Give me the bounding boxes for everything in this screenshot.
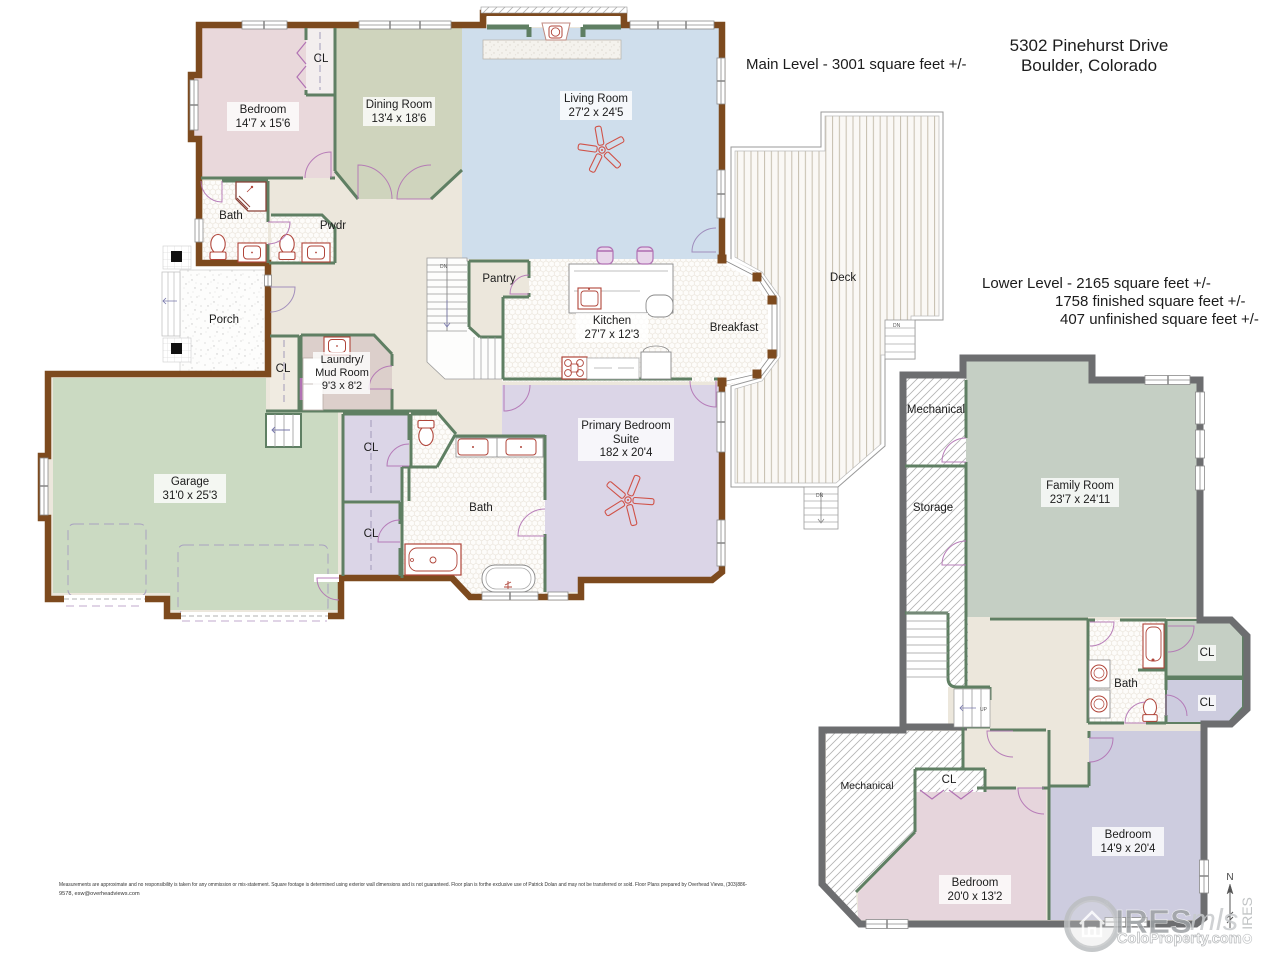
svg-text:Bedroom: Bedroom [1105, 829, 1152, 841]
svg-text:23'7 x 24'11: 23'7 x 24'11 [1050, 494, 1110, 506]
svg-text:Garage: Garage [171, 476, 209, 488]
svg-text:Kitchen: Kitchen [593, 315, 631, 327]
svg-text:CL: CL [364, 442, 379, 454]
svg-text:Bath: Bath [469, 502, 493, 514]
svg-text:Storage: Storage [913, 502, 953, 514]
svg-text:Bedroom: Bedroom [952, 877, 999, 889]
svg-text:Measurements are approximate: Measurements are approximate and no resp… [59, 882, 747, 888]
svg-text:407 unfinished square feet +/-: 407 unfinished square feet +/- [1060, 311, 1259, 328]
svg-text:Deck: Deck [830, 272, 856, 284]
svg-text:Bedroom: Bedroom [240, 104, 287, 116]
svg-text:DN: DN [440, 264, 448, 270]
svg-text:Mechanical: Mechanical [907, 404, 965, 416]
svg-text:13'4 x 18'6: 13'4 x 18'6 [372, 113, 427, 125]
svg-text:Lower Level - 2165 square feet: Lower Level - 2165 square feet +/- [982, 275, 1211, 292]
svg-text:Pantry: Pantry [482, 273, 515, 285]
svg-text:5302 Pinehurst Drive: 5302 Pinehurst Drive [1010, 36, 1169, 55]
svg-text:DN: DN [893, 323, 901, 329]
svg-text:14'7 x 15'6: 14'7 x 15'6 [236, 118, 291, 130]
svg-text:ColoProperty.com: ColoProperty.com [1117, 931, 1242, 947]
svg-text:31'0 x 25'3: 31'0 x 25'3 [163, 490, 218, 502]
svg-text:27'2 x 24'5: 27'2 x 24'5 [569, 107, 624, 119]
svg-text:CL: CL [942, 774, 957, 786]
svg-text:Family Room: Family Room [1046, 480, 1114, 492]
svg-text:Laundry/: Laundry/ [321, 354, 365, 366]
svg-text:9'3 x 8'2: 9'3 x 8'2 [322, 380, 362, 392]
svg-text:®: ® [1104, 899, 1110, 908]
svg-text:Mud Room: Mud Room [315, 367, 369, 379]
svg-text:Boulder, Colorado: Boulder, Colorado [1021, 56, 1157, 75]
svg-text:Main Level - 3001 square feet: Main Level - 3001 square feet +/- [746, 56, 967, 73]
svg-text:© IRES: © IRES [1239, 897, 1255, 944]
svg-text:Living Room: Living Room [564, 93, 628, 105]
svg-text:UP: UP [980, 707, 988, 713]
svg-text:1758 finished square feet +/-: 1758 finished square feet +/- [1055, 293, 1246, 310]
svg-text:9578, esw@overheadviews.com: 9578, esw@overheadviews.com [59, 891, 140, 897]
svg-text:CL: CL [1200, 697, 1215, 709]
svg-text:CL: CL [364, 528, 379, 540]
svg-text:N: N [1226, 872, 1233, 883]
svg-text:CL: CL [276, 363, 291, 375]
svg-text:182 x 20'4: 182 x 20'4 [600, 447, 653, 459]
svg-text:Bath: Bath [219, 210, 243, 222]
svg-text:Porch: Porch [209, 314, 239, 326]
svg-text:27'7 x 12'3: 27'7 x 12'3 [585, 329, 640, 341]
svg-text:CL: CL [1200, 647, 1215, 659]
svg-text:CL: CL [314, 53, 329, 65]
svg-text:DN: DN [816, 493, 824, 499]
svg-text:Breakfast: Breakfast [710, 322, 759, 334]
svg-text:Dining Room: Dining Room [366, 99, 432, 111]
svg-text:Primary Bedroom: Primary Bedroom [581, 420, 670, 432]
svg-text:Pwdr: Pwdr [320, 220, 346, 232]
svg-text:20'0 x 13'2: 20'0 x 13'2 [948, 891, 1003, 903]
svg-text:Suite: Suite [613, 434, 639, 446]
svg-text:Mechanical: Mechanical [840, 780, 893, 792]
svg-text:14'9 x 20'4: 14'9 x 20'4 [1101, 843, 1157, 855]
svg-text:Bath: Bath [1114, 678, 1138, 690]
